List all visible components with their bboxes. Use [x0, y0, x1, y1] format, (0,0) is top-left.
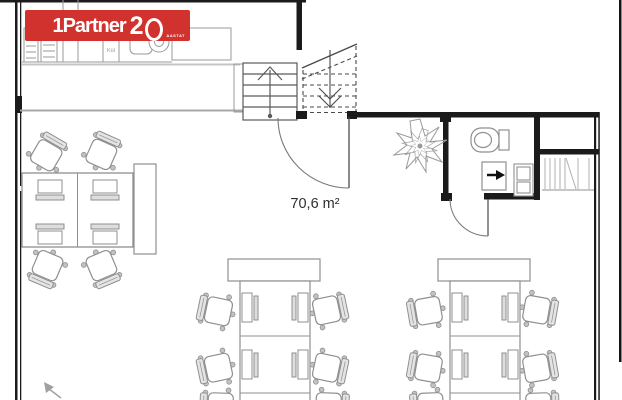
office-chair-icon	[521, 387, 560, 400]
door-swing-icon	[450, 199, 488, 236]
office-chair-icon	[78, 243, 126, 292]
office-chair-icon	[517, 289, 560, 332]
office-chair-icon	[78, 128, 127, 177]
office-chair-icon	[409, 387, 448, 400]
center-table-group	[195, 259, 351, 400]
left-wall-inner	[20, 0, 21, 400]
staircase-up-icon	[234, 63, 297, 120]
sideboard	[438, 259, 530, 281]
fridge-label: Kül	[107, 48, 115, 54]
office-chair-icon	[405, 347, 448, 390]
office-chair-icon	[195, 346, 239, 390]
washbasin-icon	[482, 162, 506, 190]
left-wall-outer	[15, 0, 18, 400]
toilet-icon	[471, 128, 509, 152]
entrance-door	[278, 111, 357, 188]
logo-anniversary-label: AASTAT	[166, 33, 185, 38]
stair-divider-wall	[297, 0, 303, 50]
staircase-down-icon	[297, 0, 358, 113]
cursor-arrow-icon	[44, 382, 61, 398]
logo-years-digit: 2	[130, 14, 144, 39]
office-chair-icon	[306, 346, 350, 390]
left-workstation-cluster	[22, 128, 156, 292]
drawing-frame-line	[619, 0, 622, 362]
wc-room	[440, 113, 540, 236]
right-table-group	[405, 259, 560, 400]
office-chair-icon	[195, 289, 239, 333]
fridge-icon: Kül	[103, 38, 119, 62]
office-chair-icon	[23, 243, 71, 292]
room-area-label: 70,6 m²	[270, 196, 360, 212]
top-wall	[0, 0, 306, 3]
sideboard	[228, 259, 320, 281]
plant-icon	[394, 119, 447, 172]
storage-closet	[540, 149, 599, 190]
logo-brand-text: 1Partner	[52, 16, 125, 36]
storage-cabinet	[134, 164, 156, 254]
partner-logo: 1Partner 2 AASTAT	[25, 10, 190, 41]
logo-zero-ring	[145, 18, 163, 41]
office-chair-icon	[22, 128, 73, 179]
office-chair-icon	[517, 347, 560, 390]
right-wall-outer	[594, 112, 596, 400]
office-chair-icon	[311, 387, 350, 400]
floor-plan-page: Kül	[0, 0, 622, 400]
boiler-cabinet-icon	[514, 164, 533, 196]
upper-right-wall	[355, 112, 599, 118]
door-swing-icon	[278, 118, 349, 188]
office-chair-icon	[405, 290, 448, 333]
office-chair-icon	[199, 387, 238, 400]
door-jamb	[296, 111, 307, 119]
wc-door	[450, 199, 488, 236]
office-chair-icon	[306, 288, 350, 332]
right-wall-inner	[598, 112, 600, 400]
